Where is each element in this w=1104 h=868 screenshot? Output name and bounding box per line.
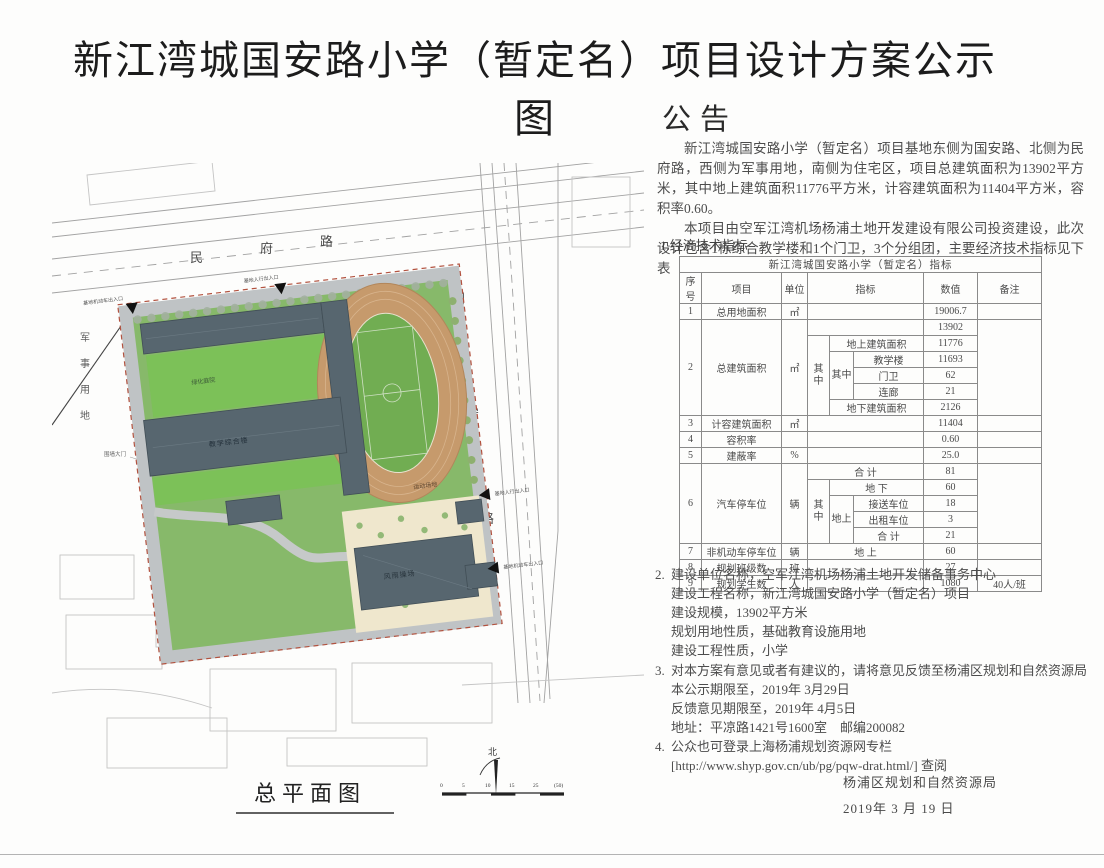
north-road (52, 163, 644, 293)
cell: 地下建筑面积 (830, 400, 924, 416)
cell: 辆 (782, 464, 808, 544)
cell (808, 448, 924, 464)
scale-bar: 0 5 10 15 25 (50) (440, 782, 564, 796)
cell: 21 (924, 528, 978, 544)
cell: 地上 (830, 496, 854, 544)
cell: 出租车位 (854, 512, 924, 528)
item-2-text: 建设单位名称，空军江湾机场杨浦土地开发储备事务中心 (671, 565, 996, 584)
cell: 其中 (808, 480, 830, 544)
cell (808, 320, 924, 336)
item-3-line: 本公示期限至，2019年 3月29日 (655, 680, 1091, 699)
item-3-line: 地址：平凉路1421号1600室 邮编200082 (655, 718, 1091, 737)
svg-text:民: 民 (190, 250, 203, 265)
svg-text:基地人行出入口: 基地人行出入口 (494, 486, 530, 497)
cell: ㎡ (782, 416, 808, 432)
svg-text:事: 事 (80, 357, 90, 370)
svg-text:军: 军 (80, 332, 90, 344)
notice-items: 2. 建设单位名称，空军江湾机场杨浦土地开发储备事务中心 建设工程名称，新江湾城… (655, 565, 1091, 775)
signature-date: 2019年 3 月 19 日 (843, 796, 997, 822)
cell (978, 464, 1042, 544)
page-title: 新江湾城国安路小学（暂定名）项目设计方案公示图 (60, 28, 1010, 144)
item-4-text: 公众也可登录上海杨浦规划资源网专栏 (671, 737, 892, 756)
cell: 0.60 (924, 432, 978, 448)
cell (808, 416, 924, 432)
table-row: 7 非机动车停车位 辆 地 上 60 (680, 544, 1042, 560)
table-row: 1 总用地面积 ㎡ 19006.7 (680, 304, 1042, 320)
notice-paragraph-1: 新江湾城国安路小学（暂定名）项目基地东侧为国安路、北侧为民府路，西侧为军事用地，… (657, 139, 1084, 219)
cell (808, 432, 924, 448)
item-4-line: 4. 公众也可登录上海杨浦规划资源网专栏 (655, 737, 1091, 756)
col-header: 序号 (680, 273, 702, 304)
item-2-line: 建设工程名称，新江湾城国安路小学（暂定名）项目 (655, 584, 1091, 603)
item-2-line: 建设工程性质，小学 (655, 641, 1091, 660)
svg-text:15: 15 (509, 783, 515, 789)
cell: 19006.7 (924, 304, 978, 320)
svg-text:地: 地 (80, 409, 90, 422)
svg-text:北: 北 (488, 747, 497, 757)
cell: 60 (924, 544, 978, 560)
cell: 18 (924, 496, 978, 512)
item-2-marker: 2. (655, 565, 671, 584)
item-2-line: 规划用地性质，基础教育设施用地 (655, 622, 1091, 641)
cell: 非机动车停车位 (702, 544, 782, 560)
svg-text:10: 10 (485, 783, 491, 789)
cell (978, 304, 1042, 320)
cell: 其中 (830, 352, 854, 400)
cell: 60 (924, 480, 978, 496)
cell: 11776 (924, 336, 978, 352)
cell: 2 (680, 320, 702, 416)
gate-house (455, 499, 483, 524)
cell: 地 上 (808, 544, 924, 560)
cell: 11404 (924, 416, 978, 432)
cell: 62 (924, 368, 978, 384)
svg-text:府: 府 (260, 241, 273, 256)
item-2-line: 建设规模，13902平方米 (655, 603, 1091, 622)
cell (978, 544, 1042, 560)
cell: % (782, 448, 808, 464)
plan-title: 总平面图 (236, 781, 394, 813)
item-4-marker: 4. (655, 737, 671, 756)
notice-heading: 公告 (662, 96, 738, 138)
cell (808, 304, 924, 320)
cell: 合 计 (808, 464, 924, 480)
cell: 建蔽率 (702, 448, 782, 464)
cell: 门卫 (854, 368, 924, 384)
col-header: 数值 (924, 273, 978, 304)
svg-text:0: 0 (440, 783, 443, 789)
col-header: 指标 (808, 273, 924, 304)
cell: 2126 (924, 400, 978, 416)
cell: 7 (680, 544, 702, 560)
cell: 地上建筑面积 (830, 336, 924, 352)
table-row: 5 建蔽率 % 25.0 (680, 448, 1042, 464)
item-3-line: 3. 对本方案有意见或者有建议的，请将意见反馈至杨浦区规划和自然资源局 (655, 661, 1091, 680)
cell: 3 (680, 416, 702, 432)
table-title-row: 新江湾城国安路小学（暂定名）指标 (680, 257, 1042, 273)
tech-indicator-table: 新江湾城国安路小学（暂定名）指标 序号 项目 单位 指标 数值 备注 1 总用地… (679, 256, 1042, 592)
cell: 教学楼 (854, 352, 924, 368)
cell: 5 (680, 448, 702, 464)
signature-org: 杨浦区规划和自然资源局 (843, 770, 997, 796)
item-3-text: 对本方案有意见或者有建议的，请将意见反馈至杨浦区规划和自然资源局 (671, 661, 1087, 680)
cell: ㎡ (782, 304, 808, 320)
item-3-line: 反馈意见期限至，2019年 4月5日 (655, 699, 1091, 718)
cell: 13902 (924, 320, 978, 336)
svg-text:用: 用 (80, 385, 90, 396)
public-notice-sheet: 新江湾城国安路小学（暂定名）项目设计方案公示图 (0, 0, 1104, 868)
cell: 4 (680, 432, 702, 448)
cell (782, 432, 808, 448)
col-header: 项目 (702, 273, 782, 304)
section-1-label: 1.经济技术指标 (660, 235, 748, 254)
cell: 21 (924, 384, 978, 400)
svg-text:25: 25 (533, 783, 539, 789)
cell: 辆 (782, 544, 808, 560)
cell: 3 (924, 512, 978, 528)
table-row: 3 计容建筑面积 ㎡ 11404 (680, 416, 1042, 432)
site-plan: 军 事 用 地 围墙大门 民 府 路 国 安 路 (52, 163, 644, 818)
cell: 其中 (808, 336, 830, 416)
cell: 连廊 (854, 384, 924, 400)
cell: 容积率 (702, 432, 782, 448)
table-header-row: 序号 项目 单位 指标 数值 备注 (680, 273, 1042, 304)
cell (978, 432, 1042, 448)
signature-block: 杨浦区规划和自然资源局 2019年 3 月 19 日 (843, 770, 997, 822)
cell: 接送车位 (854, 496, 924, 512)
svg-text:基地人行出入口: 基地人行出入口 (243, 274, 279, 285)
cell: 6 (680, 464, 702, 544)
cell: 计容建筑面积 (702, 416, 782, 432)
table-row: 2 总建筑面积 ㎡ 13902 (680, 320, 1042, 336)
cell (978, 320, 1042, 416)
cell: 25.0 (924, 448, 978, 464)
cell: ㎡ (782, 320, 808, 416)
school-parcel: 运动场地 绿化庭院 教学综合楼 风雨操场 (82, 246, 549, 668)
cell: 汽车停车位 (702, 464, 782, 544)
table-row: 4 容积率 0.60 (680, 432, 1042, 448)
svg-text:5: 5 (462, 783, 465, 789)
col-header: 备注 (978, 273, 1042, 304)
svg-text:基地机动车出入口: 基地机动车出入口 (83, 295, 124, 307)
svg-text:(50): (50) (554, 782, 563, 789)
svg-text:基地机动车出入口: 基地机动车出入口 (503, 559, 544, 571)
col-header: 单位 (782, 273, 808, 304)
cell: 总建筑面积 (702, 320, 782, 416)
cell: 11693 (924, 352, 978, 368)
cell: 地 下 (830, 480, 924, 496)
svg-text:总平面图: 总平面图 (254, 781, 366, 806)
cell: 1 (680, 304, 702, 320)
cell: 81 (924, 464, 978, 480)
table-row: 6 汽车停车位 辆 合 计 81 (680, 464, 1042, 480)
cell (978, 416, 1042, 432)
svg-text:围墙大门: 围墙大门 (104, 450, 126, 458)
item-2-line: 2. 建设单位名称，空军江湾机场杨浦土地开发储备事务中心 (655, 565, 1091, 584)
sheet-bottom-border (0, 854, 1104, 855)
table-title: 新江湾城国安路小学（暂定名）指标 (680, 257, 1042, 273)
item-3-marker: 3. (655, 661, 671, 680)
cell (978, 448, 1042, 464)
svg-text:路: 路 (320, 234, 333, 249)
cell: 总用地面积 (702, 304, 782, 320)
north-road-label: 民 府 路 (190, 234, 333, 265)
cell: 合 计 (854, 528, 924, 544)
